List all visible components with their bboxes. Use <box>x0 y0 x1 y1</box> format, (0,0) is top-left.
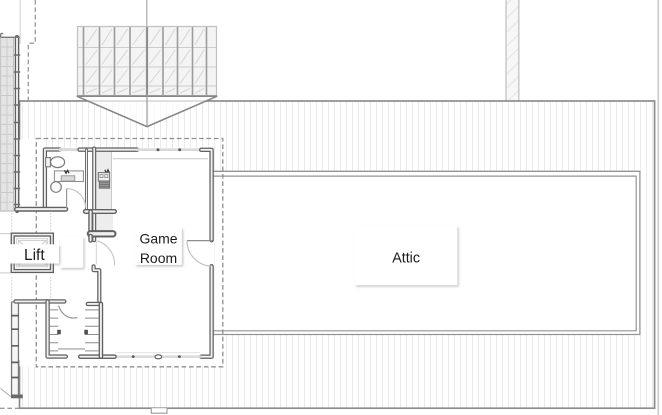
svg-text:Lift: Lift <box>24 247 45 264</box>
svg-text:Game: Game <box>139 230 177 246</box>
svg-text:Room: Room <box>140 250 177 266</box>
svg-text:Attic: Attic <box>392 250 420 266</box>
